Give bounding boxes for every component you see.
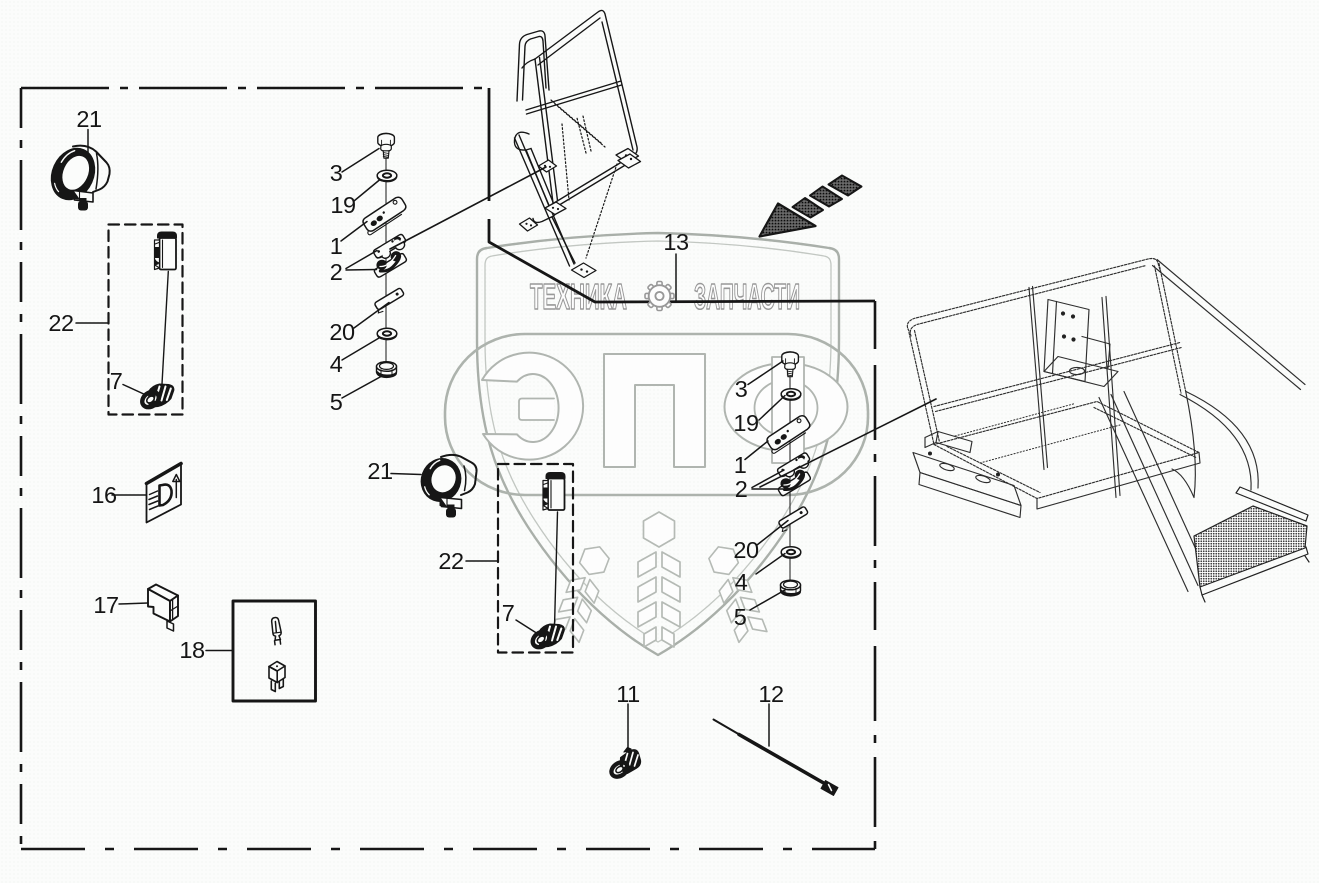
svg-text:11: 11 (616, 681, 639, 707)
svg-text:1: 1 (734, 452, 747, 478)
svg-text:2: 2 (735, 476, 748, 502)
svg-text:5: 5 (330, 389, 343, 415)
svg-text:19: 19 (733, 410, 758, 436)
svg-text:20: 20 (329, 319, 355, 345)
svg-text:7: 7 (502, 600, 515, 626)
svg-text:ТЕХНИКА: ТЕХНИКА (530, 276, 627, 317)
svg-text:22: 22 (438, 548, 463, 574)
svg-text:22: 22 (48, 310, 73, 336)
svg-text:4: 4 (735, 569, 748, 595)
svg-text:20: 20 (733, 537, 759, 563)
svg-text:3: 3 (330, 160, 343, 186)
svg-text:17: 17 (93, 592, 118, 618)
svg-text:ЗАПЧАСТИ: ЗАПЧАСТИ (694, 276, 800, 317)
svg-text:21: 21 (76, 106, 101, 132)
svg-text:5: 5 (734, 604, 747, 630)
svg-text:12: 12 (758, 681, 783, 707)
svg-text:4: 4 (330, 351, 343, 377)
svg-text:7: 7 (110, 368, 123, 394)
svg-text:18: 18 (179, 637, 205, 663)
svg-text:21: 21 (367, 458, 392, 484)
svg-text:16: 16 (91, 482, 117, 508)
svg-text:19: 19 (330, 192, 355, 218)
svg-text:1: 1 (330, 233, 343, 259)
svg-text:2: 2 (330, 259, 343, 285)
svg-text:3: 3 (735, 376, 748, 402)
svg-text:13: 13 (663, 229, 689, 255)
